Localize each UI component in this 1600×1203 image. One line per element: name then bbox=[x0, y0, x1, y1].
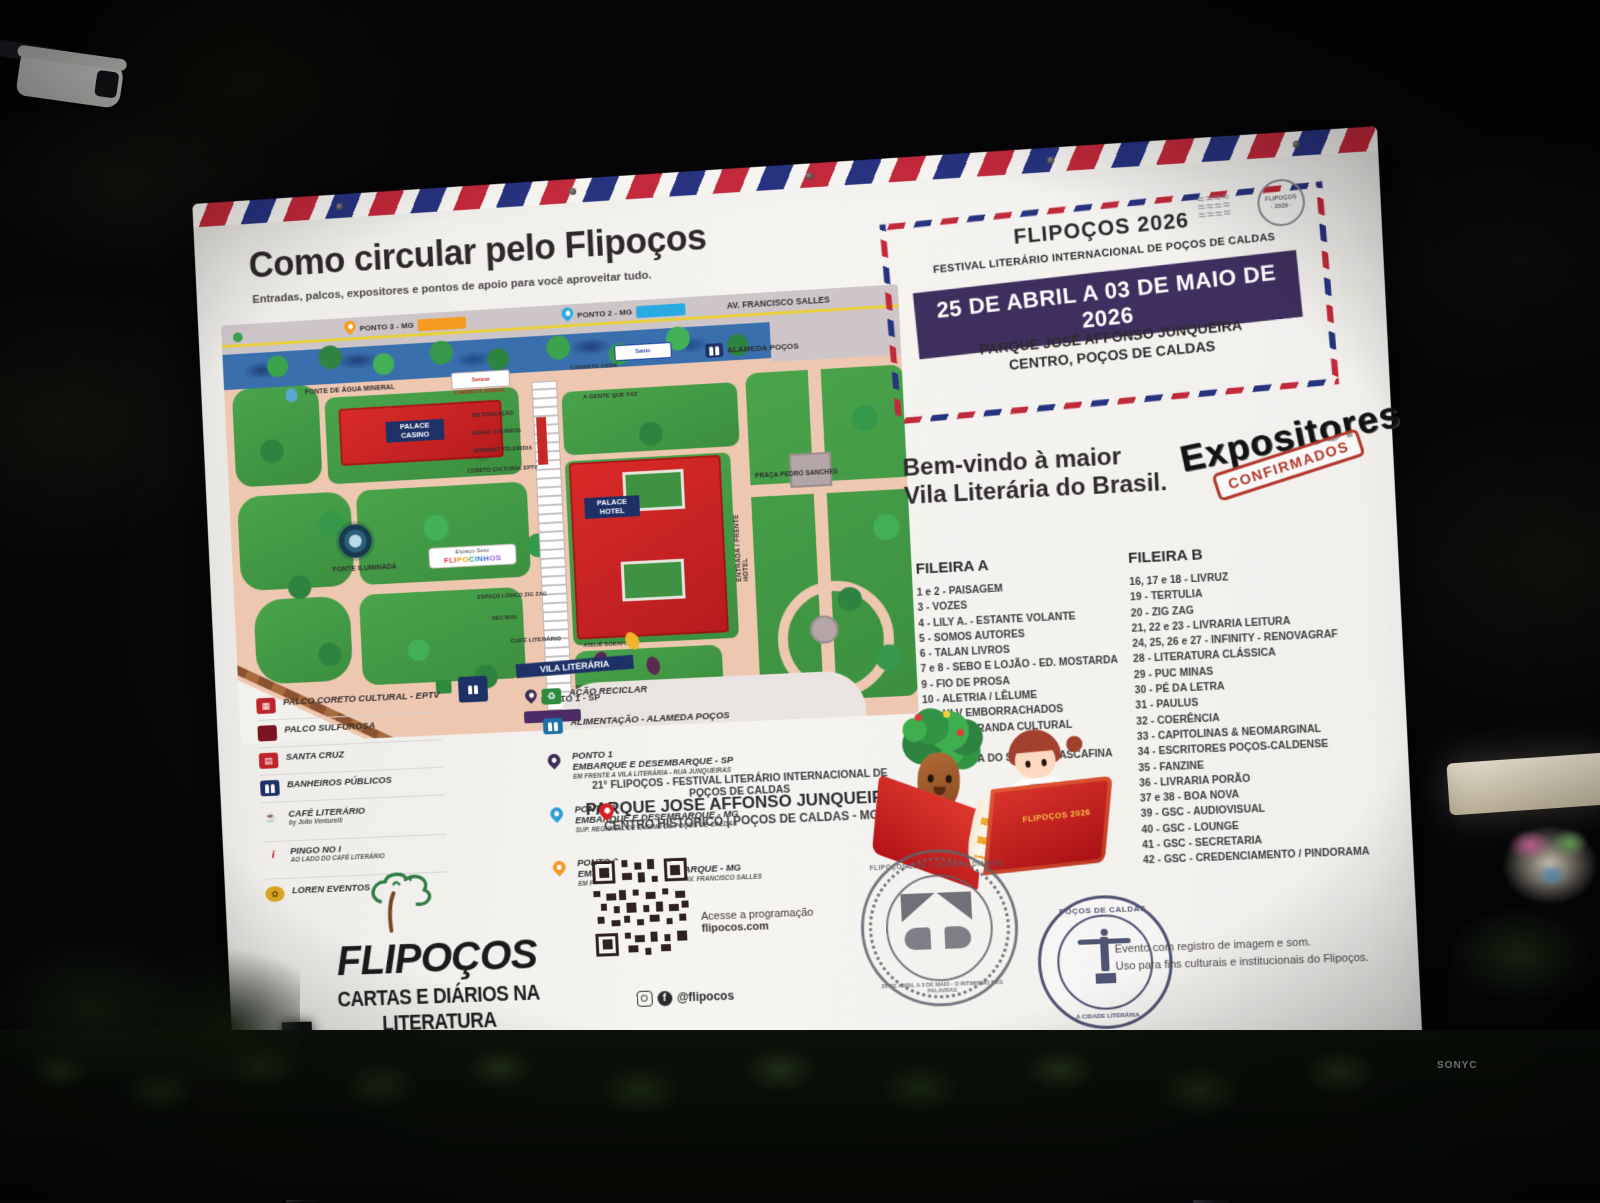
ponto1-pin-icon bbox=[523, 687, 540, 704]
photo-watermark: SONYC bbox=[1437, 1060, 1478, 1071]
map-plaza-north bbox=[769, 314, 901, 362]
fileira-b-title: FILEIRA B bbox=[1128, 536, 1396, 567]
map-hotel-courtyard bbox=[621, 559, 686, 602]
restroom-icon bbox=[260, 780, 280, 797]
mascot-tree-foliage bbox=[902, 718, 927, 743]
map-sponsor-box: Serasa bbox=[451, 369, 510, 389]
instagram-icon bbox=[636, 991, 653, 1007]
camera-lens-icon bbox=[94, 70, 119, 99]
social-handle-text: @flipocos bbox=[677, 989, 735, 1005]
map-lawn bbox=[561, 382, 739, 456]
postmark-waves: ≈≈≈≈≈≈≈≈≈≈≈≈ bbox=[1197, 190, 1261, 222]
flower-icon bbox=[957, 729, 964, 736]
stage-eptv-icon: ▦ bbox=[256, 698, 276, 715]
food-icon bbox=[543, 718, 563, 735]
map-label-seu-buu: SEU BUU bbox=[492, 615, 517, 622]
recycle-icon: ♻ bbox=[541, 688, 561, 705]
map-label-palace-hotel: PALACE HOTEL bbox=[584, 495, 640, 519]
legend-label: SANTA CRUZ bbox=[285, 749, 344, 763]
expositores-art: Expositores CONFIRMADOS bbox=[1170, 391, 1411, 482]
postmark-stamp: ≈≈≈≈≈≈≈≈≈≈≈≈ FLIPOÇOS · 2026 · bbox=[1227, 177, 1307, 229]
facebook-icon: f bbox=[657, 990, 673, 1005]
foreground-hedge-left bbox=[0, 920, 300, 1080]
coffee-icon: ☕ bbox=[261, 809, 281, 826]
map-lawn bbox=[232, 385, 323, 488]
park-map: PALACE CASINO PALACE HOTEL PONTO 3 - MG … bbox=[221, 284, 919, 744]
social-handles: f @flipocos bbox=[586, 986, 784, 1009]
postmark-circle: FLIPOÇOS · 2026 · bbox=[1256, 177, 1307, 228]
restroom-icon bbox=[705, 343, 723, 358]
restroom-map-icon bbox=[458, 676, 488, 703]
stamp-text-bottom: A CIDADE LITERÁRIA bbox=[1044, 1011, 1173, 1021]
tram-icon: ▤ bbox=[259, 752, 279, 769]
legend-item: 𝒊 PINGO NO I AO LADO DO CAFÉ LITERÁRIO bbox=[263, 842, 385, 865]
mascot-girl-bun bbox=[1065, 735, 1083, 753]
welcome-text: Bem-vindo à maior Vila Literária do Bras… bbox=[902, 440, 1168, 510]
legend-item: ☕ CAFÉ LITERÁRIO by João Venturelli bbox=[261, 806, 365, 828]
map-lawn bbox=[253, 596, 353, 685]
fileira-b-list: FILEIRA B 16, 17 e 18 - LIVRUZ 19 - TERT… bbox=[1128, 536, 1412, 869]
fileira-a-title: FILEIRA A bbox=[915, 550, 1123, 578]
stamp-book-icon bbox=[900, 891, 973, 950]
flower-icon bbox=[915, 714, 922, 721]
map-lawn bbox=[237, 491, 355, 591]
flipocos-sign-board: Como circular pelo Flipoços Entradas, pa… bbox=[192, 126, 1423, 1096]
dark-red-square-icon bbox=[257, 725, 277, 742]
qr-code bbox=[592, 858, 691, 957]
envelope-header: FLIPOÇOS 2026 FESTIVAL LITERÁRIO INTERNA… bbox=[879, 181, 1339, 424]
map-label-palace-casino: PALACE CASINO bbox=[385, 419, 444, 443]
map-sponsor-box: Santo bbox=[614, 342, 672, 361]
legend-label: BANHEIROS PÚBLICOS bbox=[287, 775, 392, 791]
legend-item: ▤ SANTA CRUZ bbox=[259, 749, 345, 769]
legend-item: BANHEIROS PÚBLICOS bbox=[260, 775, 392, 796]
legend-label: AÇÃO RECICLAR bbox=[569, 684, 648, 699]
qr-caption: Acesse a programação flipocos.com bbox=[701, 907, 814, 935]
map-lawn bbox=[359, 587, 526, 686]
pingo-icon: 𝒊 bbox=[263, 847, 283, 863]
fountain-icon bbox=[285, 388, 297, 402]
pin-dark-icon bbox=[545, 751, 563, 769]
tent-bush bbox=[1440, 900, 1600, 1010]
pin-blue-icon bbox=[548, 805, 566, 823]
